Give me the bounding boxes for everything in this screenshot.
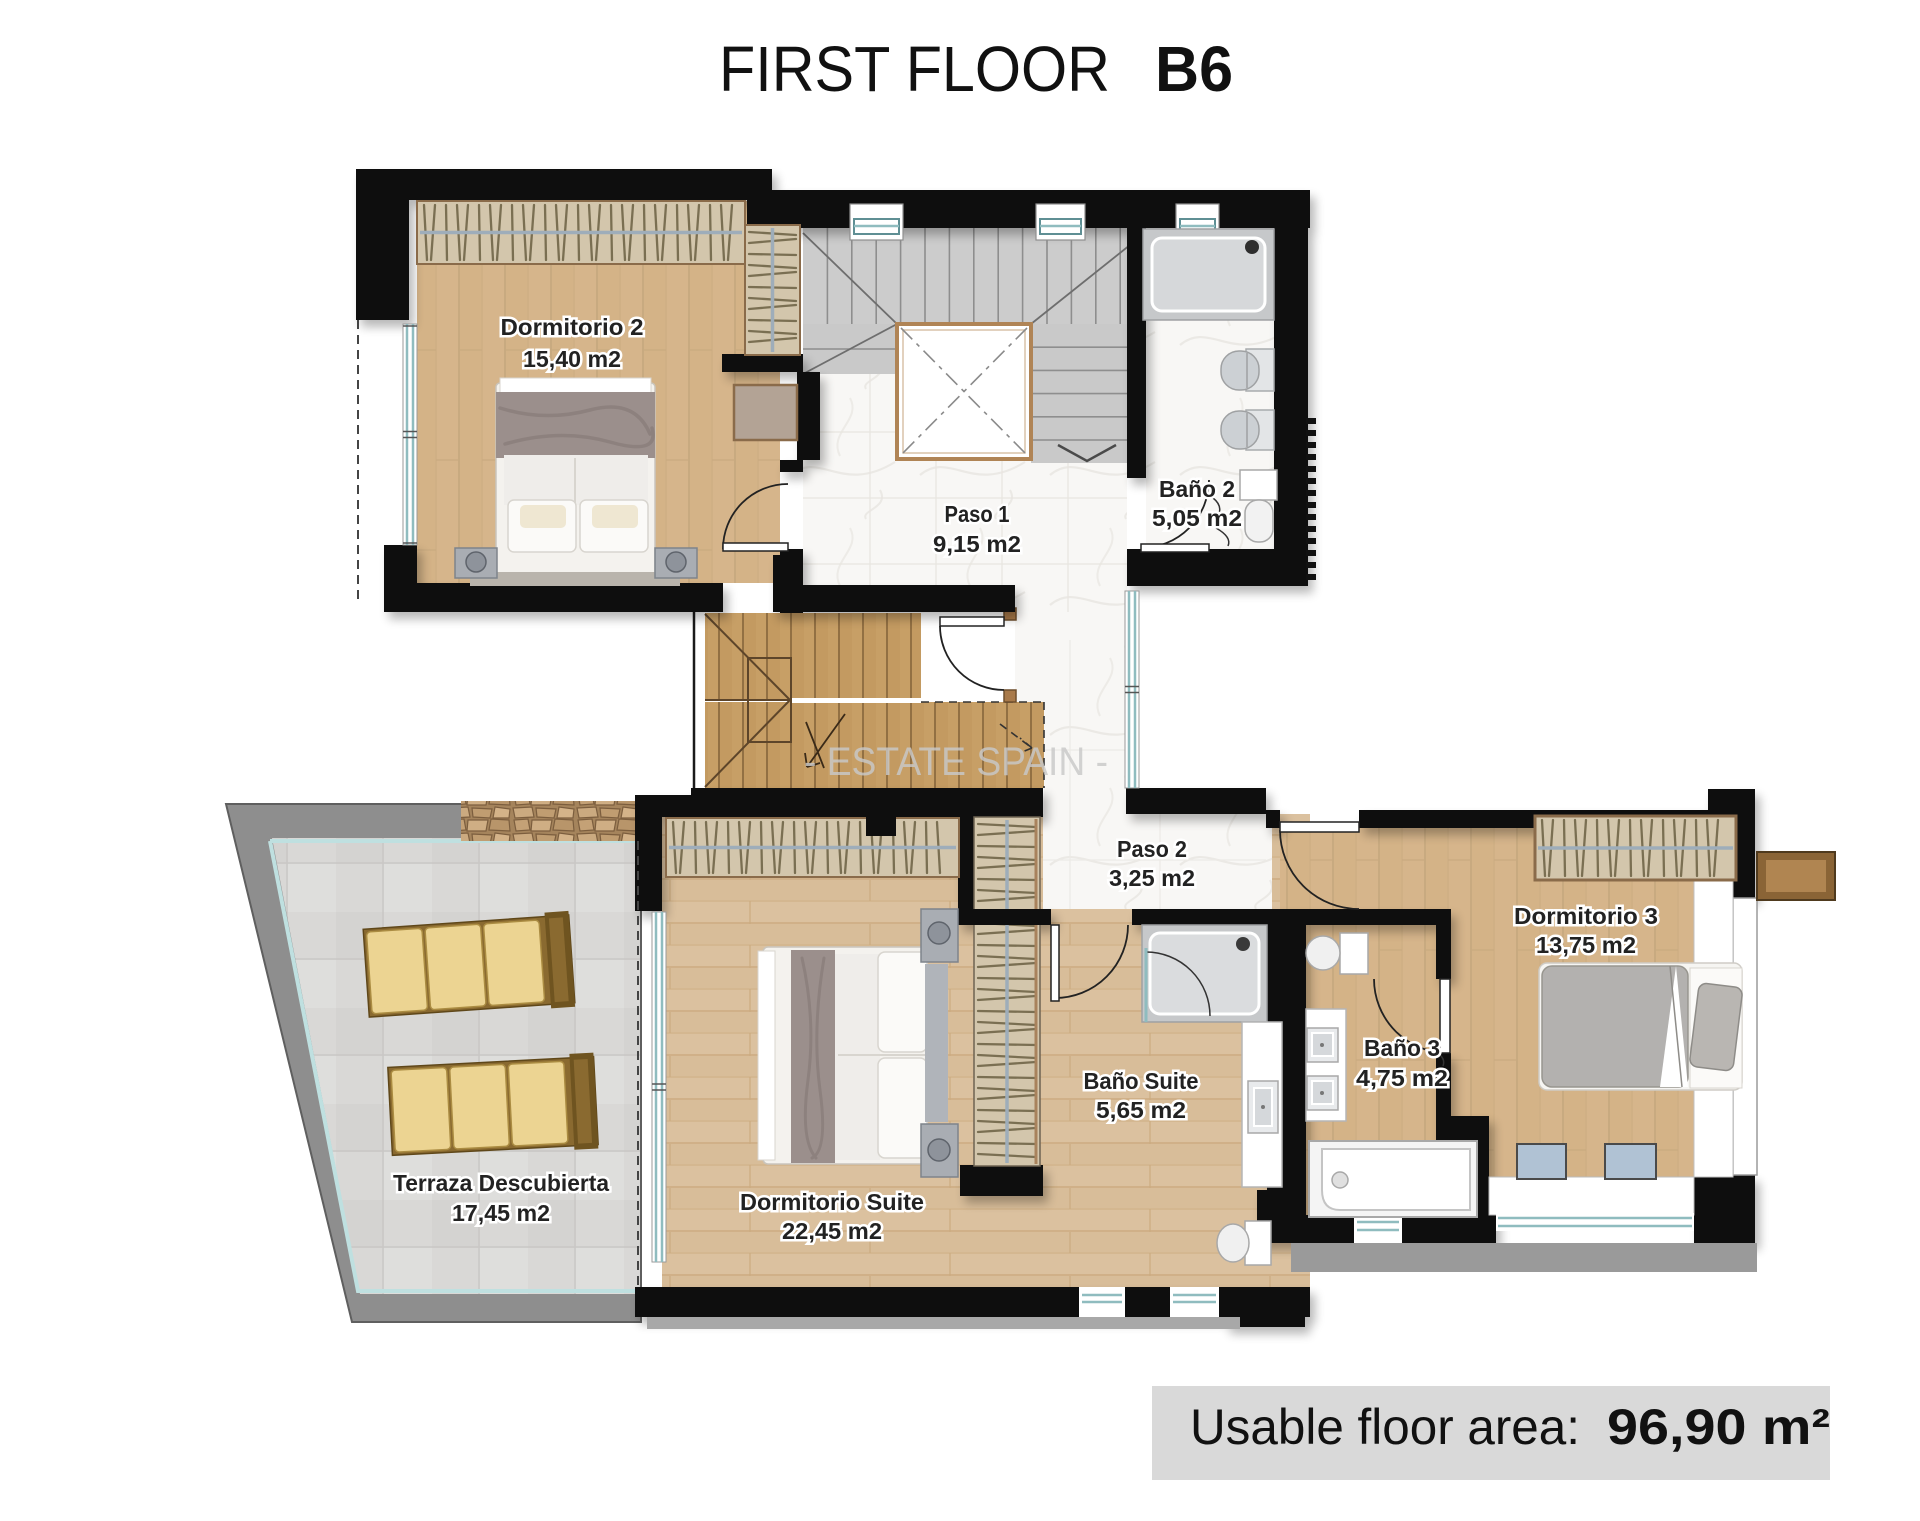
svg-text:9,15 m2: 9,15 m2 <box>933 531 1021 557</box>
svg-text:FIRST FLOOR: FIRST FLOOR <box>719 33 1110 105</box>
svg-text:Paso 1: Paso 1 <box>945 501 1010 527</box>
svg-text:13,75 m2: 13,75 m2 <box>1536 932 1636 958</box>
svg-text:Baño 2: Baño 2 <box>1159 476 1235 502</box>
svg-text:96,90 m²: 96,90 m² <box>1607 1399 1830 1455</box>
svg-text:5,65 m2: 5,65 m2 <box>1096 1097 1186 1123</box>
svg-text:Dormitorio Suite: Dormitorio Suite <box>740 1189 924 1215</box>
svg-text:Baño 3: Baño 3 <box>1364 1035 1440 1061</box>
svg-text:B6: B6 <box>1155 33 1233 105</box>
svg-text:15,40 m2: 15,40 m2 <box>523 346 621 372</box>
svg-text:4,75 m2: 4,75 m2 <box>1356 1065 1448 1091</box>
svg-text:22,45 m2: 22,45 m2 <box>782 1218 882 1244</box>
svg-text:Paso 2: Paso 2 <box>1117 836 1187 862</box>
svg-text:Dormitorio 2: Dormitorio 2 <box>501 314 644 340</box>
svg-text:Baño Suite: Baño Suite <box>1084 1068 1199 1094</box>
svg-text:Usable floor area:: Usable floor area: <box>1190 1399 1580 1455</box>
svg-text:17,45 m2: 17,45 m2 <box>452 1200 550 1226</box>
svg-text:Dormitorio 3: Dormitorio 3 <box>1514 903 1658 929</box>
svg-text:- ESTATE SPAIN -: - ESTATE SPAIN - <box>804 740 1108 784</box>
svg-text:Terraza Descubierta: Terraza Descubierta <box>393 1170 609 1196</box>
svg-text:5,05 m2: 5,05 m2 <box>1152 505 1242 531</box>
svg-text:3,25 m2: 3,25 m2 <box>1109 865 1195 891</box>
